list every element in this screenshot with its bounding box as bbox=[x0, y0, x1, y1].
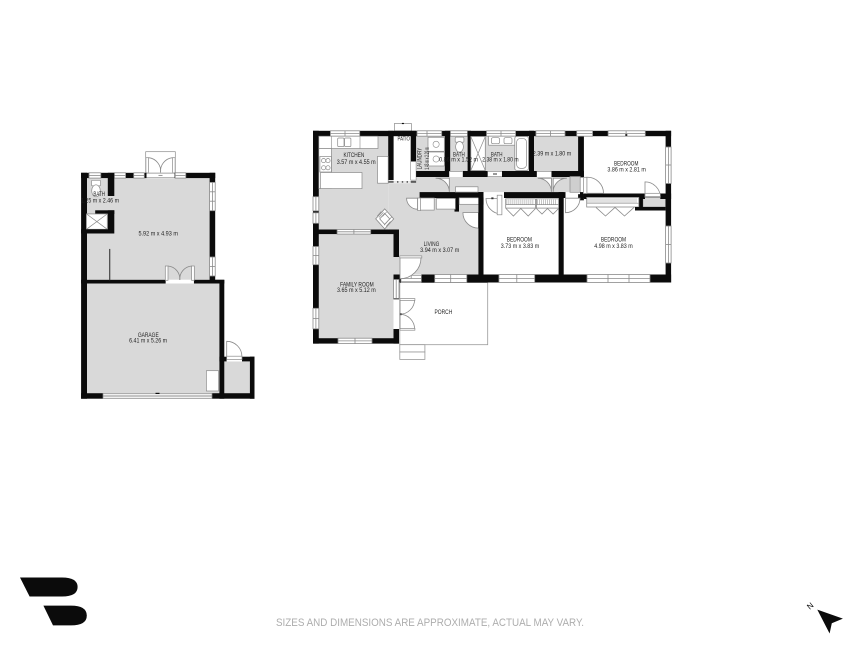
svg-text:3.57 m x 4.55 m: 3.57 m x 4.55 m bbox=[337, 159, 376, 166]
svg-text:3.86 m x 2.81 m: 3.86 m x 2.81 m bbox=[607, 166, 645, 173]
svg-text:5.92 m x 4.93 m: 5.92 m x 4.93 m bbox=[138, 231, 178, 238]
svg-text:3.73 m x 3.83 m: 3.73 m x 3.83 m bbox=[501, 243, 539, 250]
svg-text:6.41 m x 5.26 m: 6.41 m x 5.26 m bbox=[129, 338, 167, 345]
svg-text:PORCH: PORCH bbox=[435, 309, 453, 316]
svg-text:3.94 m x 3.07 m: 3.94 m x 3.07 m bbox=[420, 247, 459, 254]
svg-text:PATIO: PATIO bbox=[398, 137, 411, 143]
svg-text:1.43 m x 2.29 m: 1.43 m x 2.29 m bbox=[425, 147, 431, 170]
svg-text:3.65 m x 5.12 m: 3.65 m x 5.12 m bbox=[337, 287, 376, 294]
svg-text:2.38 m x 1.80 m: 2.38 m x 1.80 m bbox=[482, 157, 518, 164]
svg-text:0.86 m x 1.52 m: 0.86 m x 1.52 m bbox=[439, 157, 478, 164]
svg-text:LAUNDRY: LAUNDRY bbox=[418, 148, 424, 170]
svg-text:SIZES AND DIMENSIONS ARE APPRO: SIZES AND DIMENSIONS ARE APPROXIMATE, AC… bbox=[276, 617, 584, 629]
svg-text:4.98 m x 3.83 m: 4.98 m x 3.83 m bbox=[594, 243, 633, 250]
svg-text:KITCHEN: KITCHEN bbox=[344, 152, 365, 159]
svg-text:2.39 m x 1.80 m: 2.39 m x 1.80 m bbox=[533, 151, 572, 158]
svg-text:1.25 m x 2.46 m: 1.25 m x 2.46 m bbox=[81, 197, 119, 204]
